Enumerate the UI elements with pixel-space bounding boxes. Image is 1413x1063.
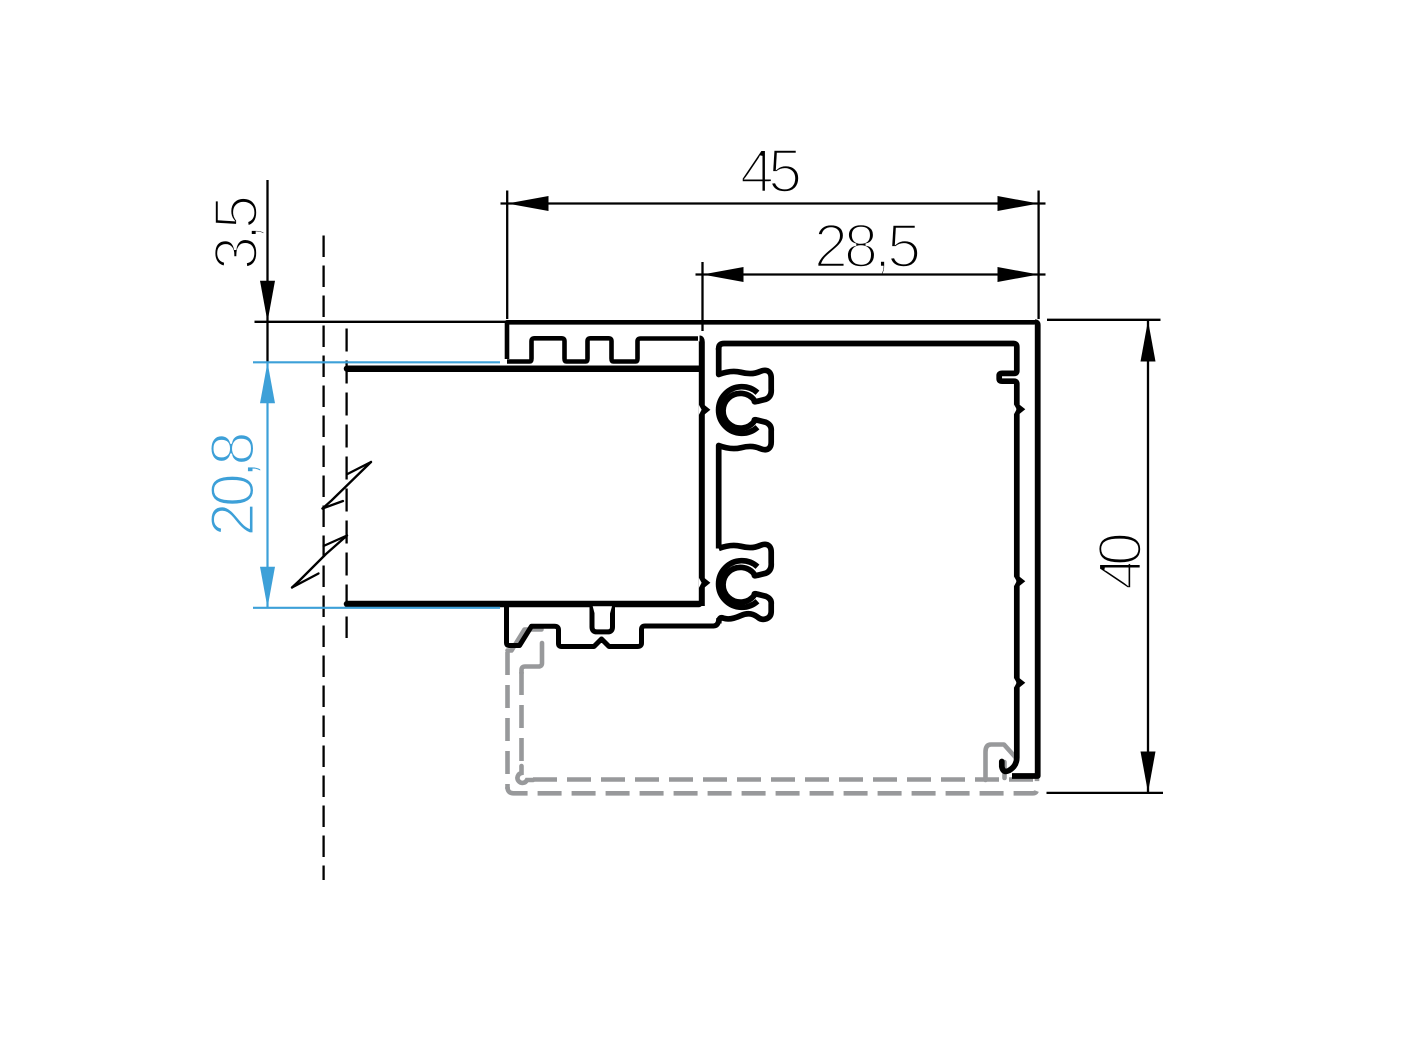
svg-text:45: 45	[740, 137, 802, 205]
svg-text:3,5: 3,5	[202, 195, 270, 270]
svg-text:20,8: 20,8	[199, 432, 267, 537]
svg-text:40: 40	[1086, 532, 1154, 590]
svg-text:28,5: 28,5	[814, 212, 921, 280]
